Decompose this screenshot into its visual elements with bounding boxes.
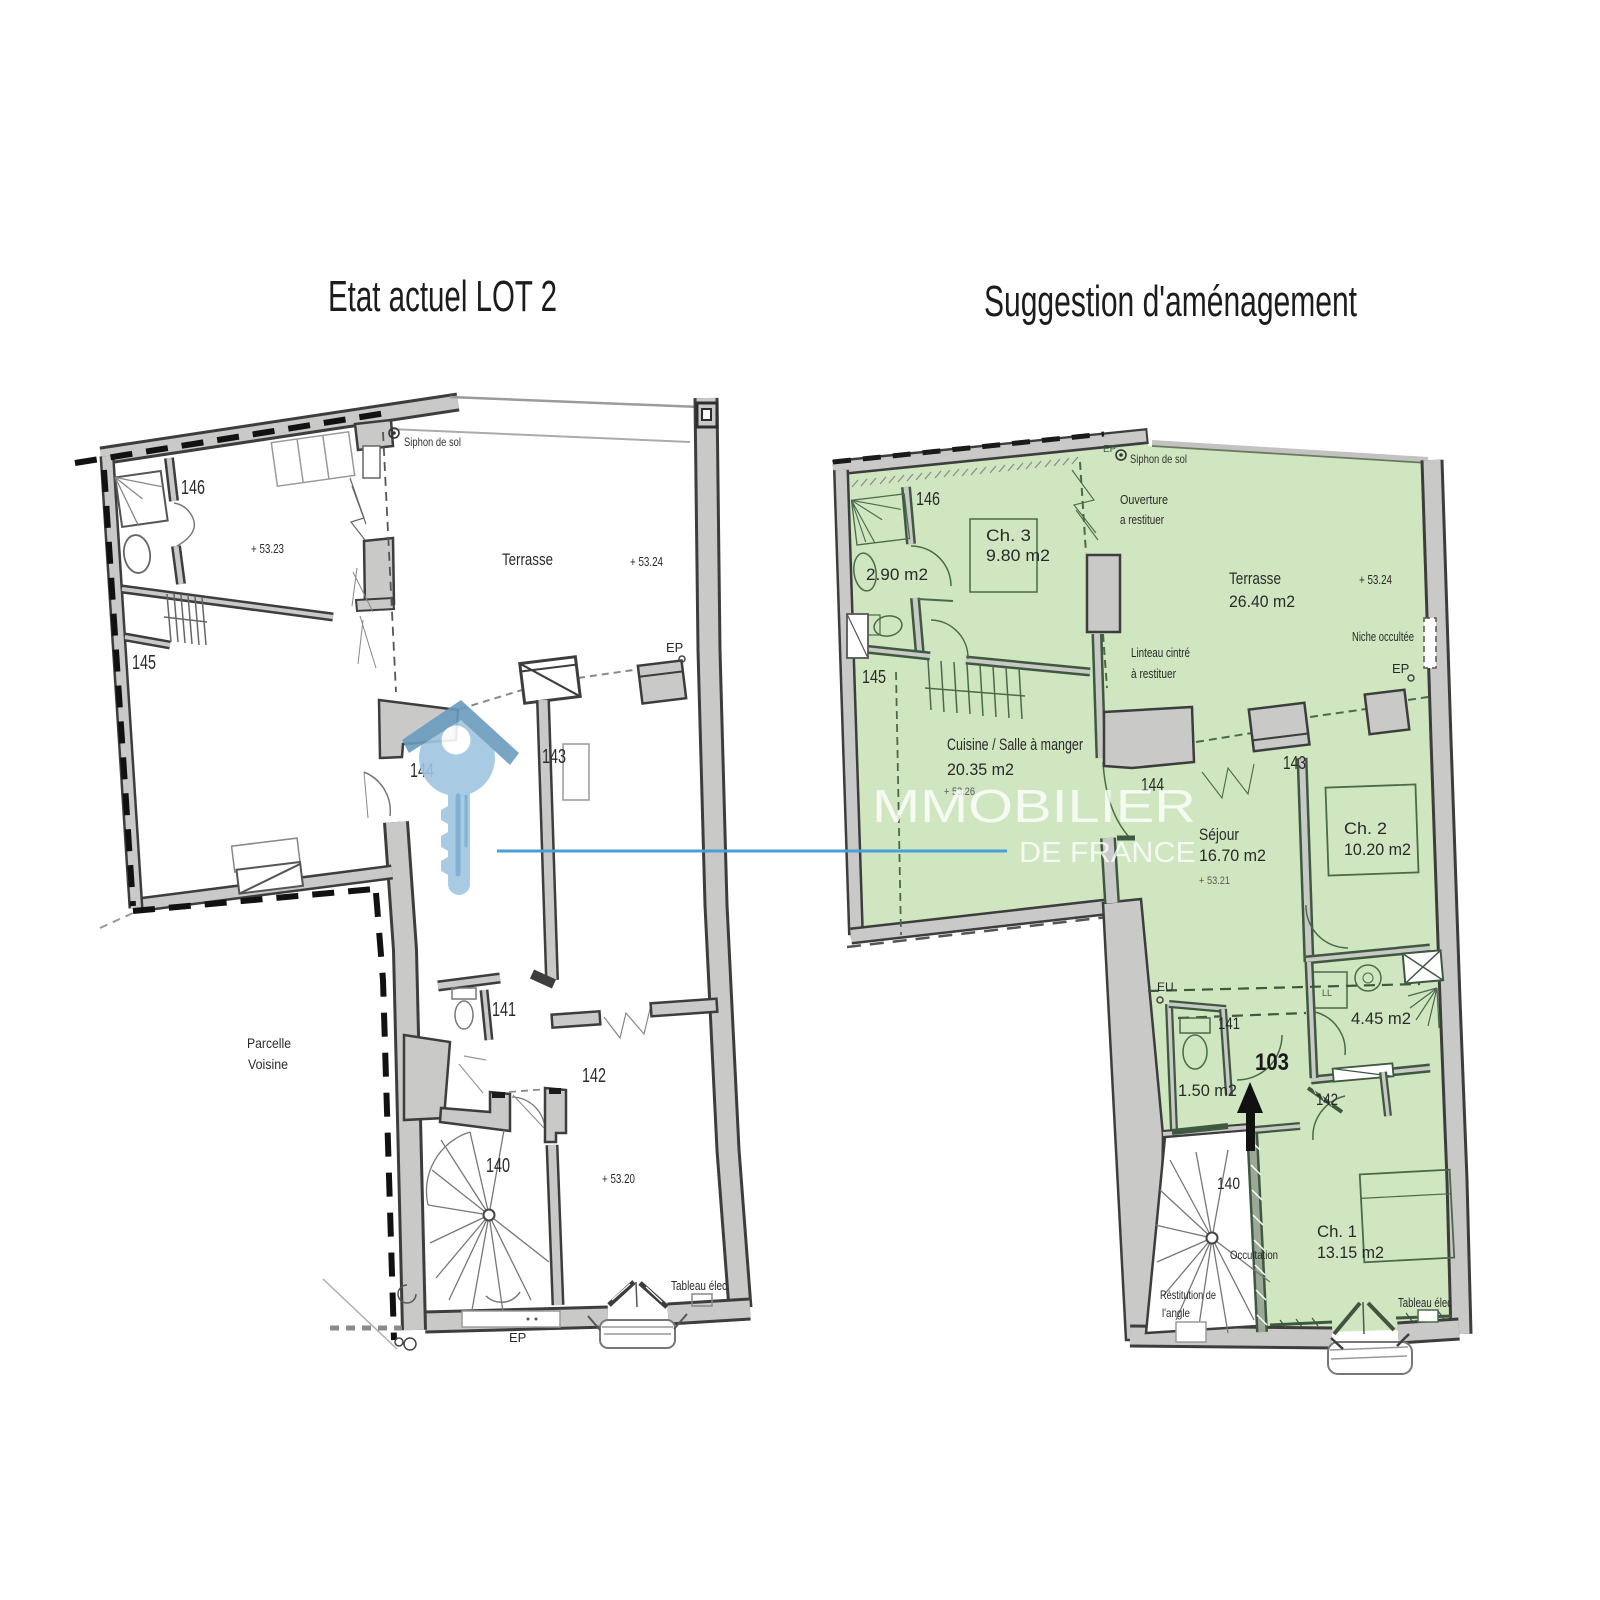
svg-text:2.90 m2: 2.90 m2 (866, 565, 928, 584)
svg-text:Siphon de sol: Siphon de sol (404, 435, 461, 449)
svg-text:Ch. 3: Ch. 3 (986, 526, 1031, 545)
svg-text:+ 53.23: + 53.23 (251, 541, 284, 556)
svg-text:+ 53.24: + 53.24 (630, 554, 663, 569)
svg-text:10.20 m2: 10.20 m2 (1344, 840, 1411, 859)
svg-text:142: 142 (1316, 1090, 1338, 1109)
svg-text:EU: EU (1157, 980, 1174, 994)
svg-text:EP: EP (666, 640, 683, 655)
svg-text:Voisine: Voisine (248, 1056, 288, 1072)
svg-text:à restituer: à restituer (1131, 667, 1176, 681)
svg-text:20.35 m2: 20.35 m2 (947, 760, 1014, 779)
svg-text:26.40 m2: 26.40 m2 (1229, 592, 1295, 611)
svg-text:EP: EP (509, 1330, 526, 1345)
svg-text:LL: LL (1322, 988, 1332, 998)
svg-text:Ch. 1: Ch. 1 (1317, 1222, 1357, 1241)
svg-text:141: 141 (492, 999, 516, 1021)
svg-text:4.45 m2: 4.45 m2 (1351, 1009, 1411, 1028)
svg-text:a restituer: a restituer (1120, 513, 1164, 527)
svg-text:145: 145 (862, 667, 886, 687)
svg-text:+ 53.20: + 53.20 (602, 1171, 635, 1186)
svg-text:16.70 m2: 16.70 m2 (1199, 846, 1266, 865)
svg-text:MMOBILIER: MMOBILIER (872, 780, 1196, 832)
svg-text:103: 103 (1255, 1049, 1289, 1076)
svg-text:Occultation: Occultation (1230, 1248, 1278, 1262)
svg-text:146: 146 (916, 489, 940, 509)
svg-text:Suggestion d'aménagement: Suggestion d'aménagement (984, 277, 1357, 326)
svg-text:Tableau élec: Tableau élec (671, 1279, 727, 1293)
svg-text:Réstitution de: Réstitution de (1160, 1288, 1216, 1302)
svg-text:13.15 m2: 13.15 m2 (1317, 1243, 1384, 1262)
svg-text:140: 140 (486, 1155, 510, 1177)
svg-text:l'angle: l'angle (1162, 1306, 1190, 1320)
svg-text:EP: EP (1103, 444, 1117, 455)
svg-text:Séjour: Séjour (1199, 825, 1239, 844)
svg-text:Etat actuel LOT 2: Etat actuel LOT 2 (328, 272, 557, 321)
svg-text:142: 142 (582, 1065, 606, 1087)
svg-text:Tableau élec: Tableau élec (1398, 1296, 1452, 1310)
svg-text:Linteau cintré: Linteau cintré (1131, 646, 1190, 660)
svg-text:+ 53.21: + 53.21 (1199, 875, 1230, 887)
svg-text:141: 141 (1218, 1014, 1240, 1033)
svg-text:Terrasse: Terrasse (502, 550, 553, 569)
svg-text:EP: EP (1392, 661, 1409, 676)
svg-text:1.50 m2: 1.50 m2 (1178, 1081, 1237, 1100)
svg-text:Siphon de sol: Siphon de sol (1130, 452, 1187, 466)
svg-text:Niche occultée: Niche occultée (1352, 630, 1414, 644)
svg-text:143: 143 (542, 746, 566, 768)
svg-text:Terrasse: Terrasse (1229, 569, 1281, 588)
svg-text:146: 146 (181, 477, 205, 499)
svg-text:9.80 m2: 9.80 m2 (986, 546, 1050, 565)
svg-text:+ 53.24: + 53.24 (1359, 572, 1392, 587)
svg-text:Ch. 2: Ch. 2 (1344, 819, 1387, 838)
svg-text:DE FRANCE: DE FRANCE (1019, 837, 1196, 869)
svg-text:Ouverture: Ouverture (1120, 493, 1168, 507)
svg-text:140: 140 (1217, 1174, 1240, 1193)
svg-text:145: 145 (132, 652, 156, 674)
svg-text:143: 143 (1283, 753, 1306, 773)
svg-text:Cuisine / Salle à manger: Cuisine / Salle à manger (947, 735, 1083, 754)
svg-text:Parcelle: Parcelle (247, 1035, 291, 1051)
